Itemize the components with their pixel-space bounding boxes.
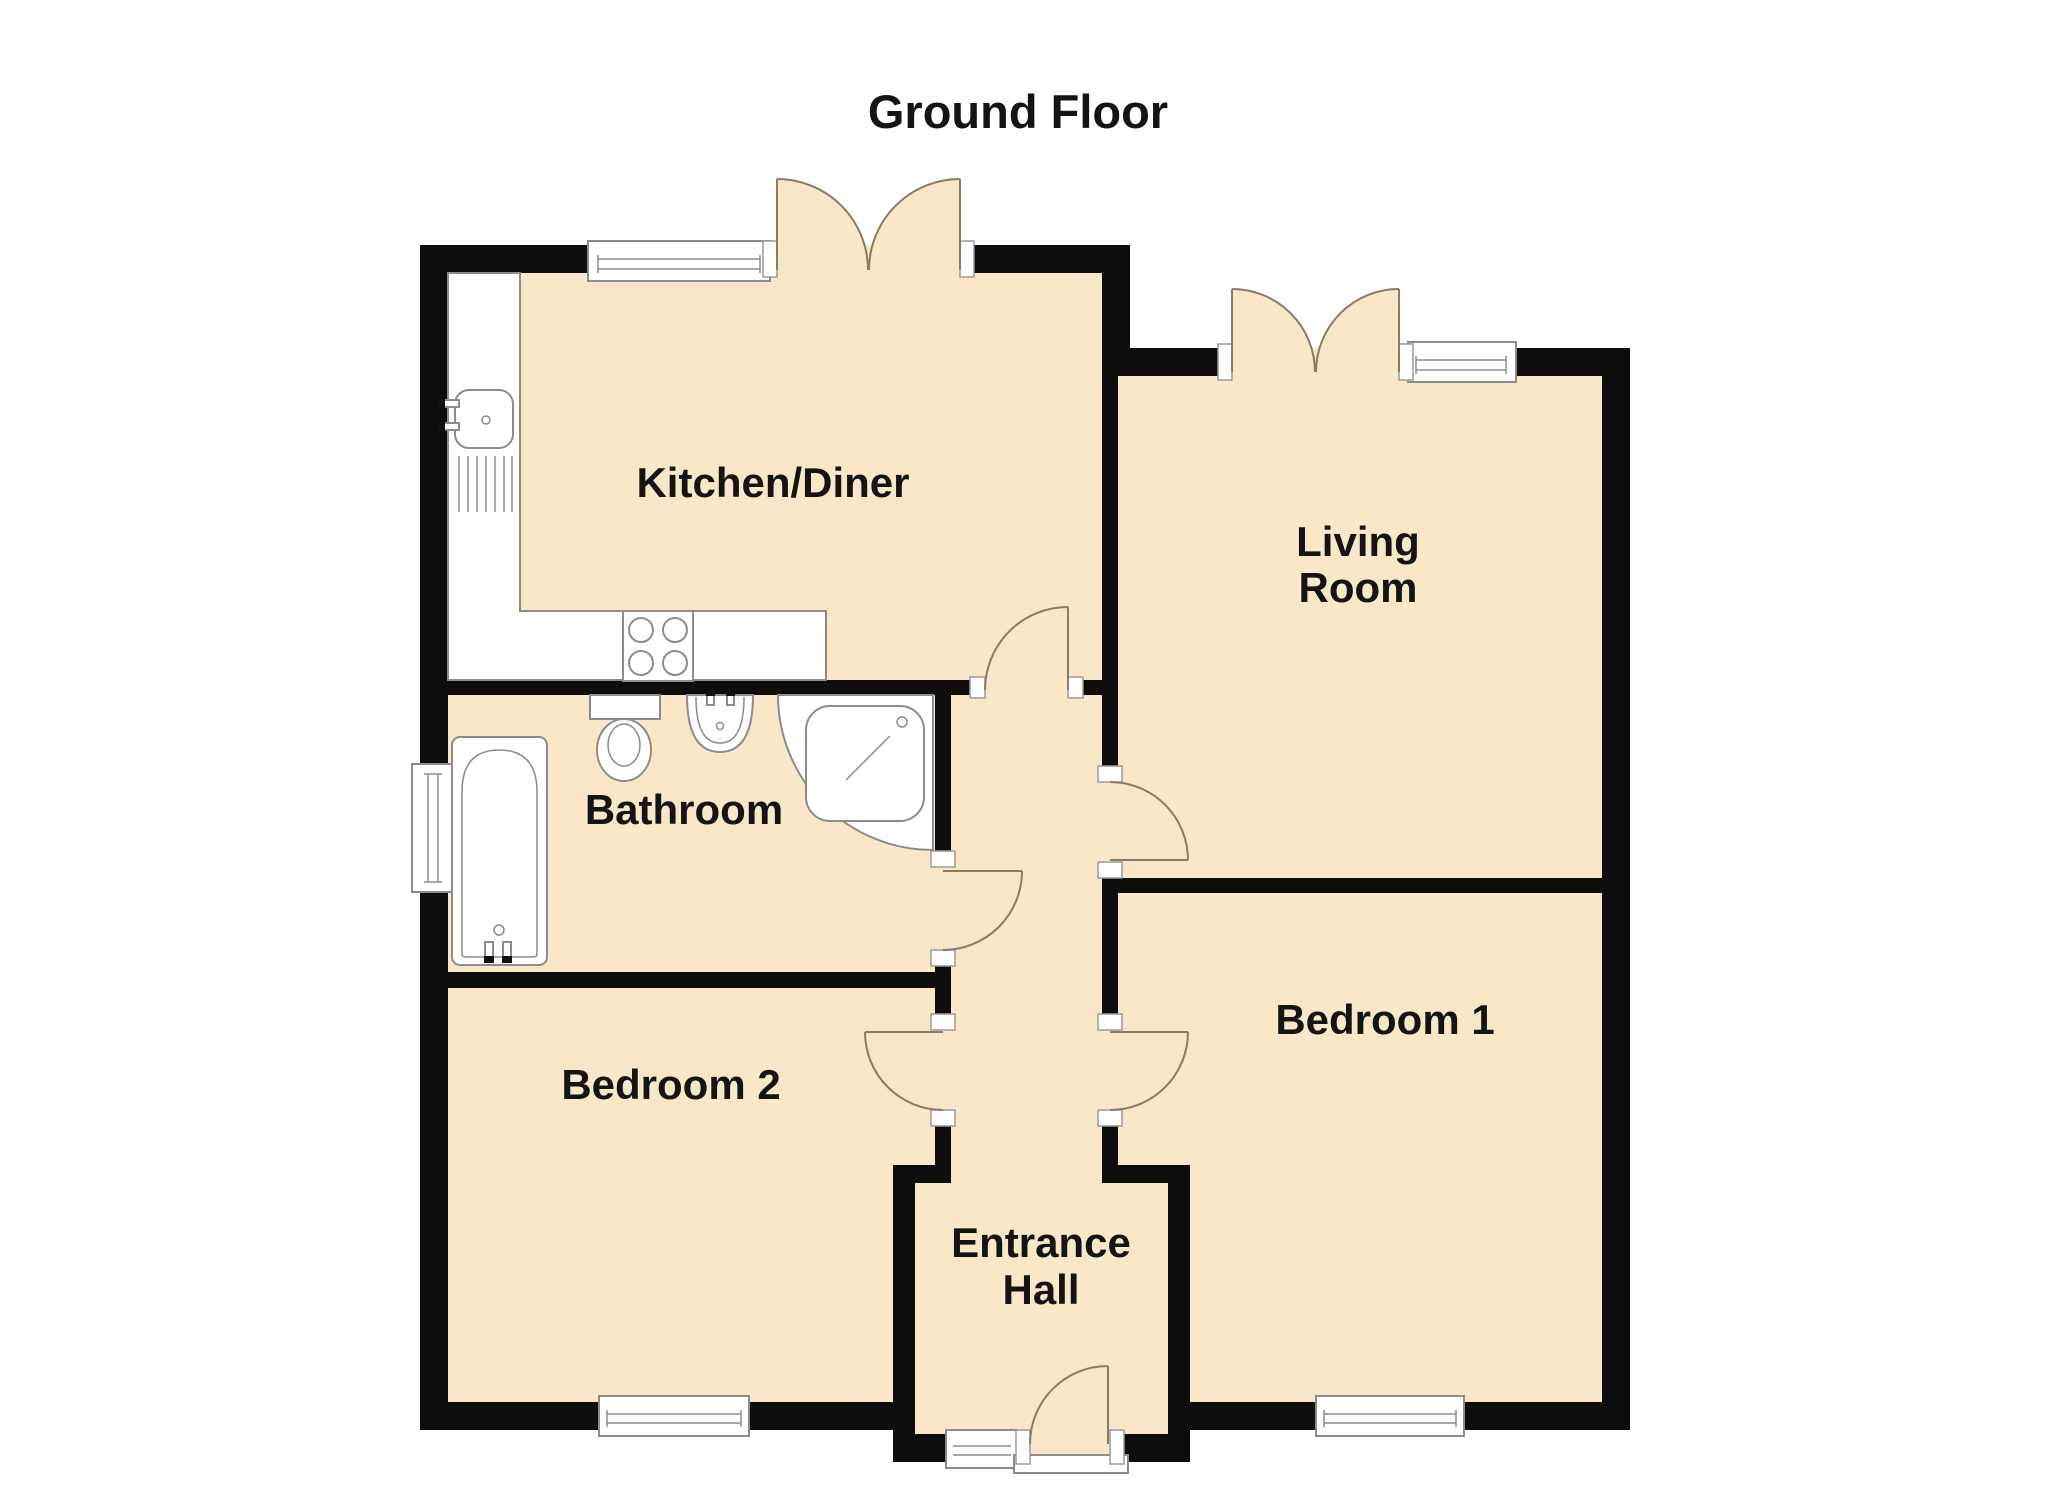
door-frame-notch bbox=[960, 241, 974, 277]
room-label-living-line1: Living bbox=[1296, 518, 1420, 565]
bathtub-tap-tip bbox=[502, 956, 512, 963]
bathtub-tap-tip bbox=[484, 956, 494, 963]
wall-hall-west-mid bbox=[935, 988, 951, 1014]
wall-entrance-east bbox=[1168, 1165, 1190, 1462]
wall-hall-west-upper bbox=[935, 695, 951, 852]
sink-tap-tip bbox=[438, 422, 445, 431]
window-box bbox=[599, 1396, 749, 1436]
basin-tap-tip bbox=[706, 690, 715, 696]
window-bedroom2-bottom bbox=[599, 1396, 749, 1436]
door-frame-notch bbox=[763, 241, 777, 277]
opening-kitchen-hall bbox=[970, 680, 1083, 695]
page-title: Ground Floor bbox=[868, 85, 1168, 138]
wall-living-top-left bbox=[1102, 348, 1218, 376]
window-kitchen-top bbox=[588, 241, 770, 281]
window-living-top bbox=[1408, 342, 1516, 382]
door-frame-notch bbox=[1098, 862, 1122, 878]
wall-hall-east-mid bbox=[1102, 878, 1118, 1014]
hob-burner bbox=[629, 618, 653, 642]
toilet-cistern bbox=[590, 695, 660, 719]
door-frame-notch bbox=[1098, 766, 1122, 782]
wall-living-bedroom1 bbox=[1102, 878, 1602, 893]
door-frame-notch bbox=[1098, 1110, 1122, 1126]
wall-entrance-bottom-right bbox=[1124, 1434, 1168, 1462]
toilet-bowl bbox=[597, 719, 651, 781]
room-label-kitchen: Kitchen/Diner bbox=[636, 459, 909, 506]
floor-plan-svg: Ground Floor Kitchen/Diner Living Room B… bbox=[0, 0, 2048, 1489]
door-frame-notch bbox=[1016, 1430, 1030, 1464]
window-entrance-bottom bbox=[946, 1430, 1018, 1468]
door-frame-notch bbox=[1098, 1014, 1122, 1030]
room-label-entrance-line1: Entrance bbox=[951, 1219, 1131, 1266]
window-box bbox=[1408, 342, 1516, 382]
window-bathroom-west bbox=[412, 764, 454, 892]
hob-burner bbox=[663, 618, 687, 642]
room-label-bedroom1: Bedroom 1 bbox=[1275, 996, 1494, 1043]
bathtub bbox=[452, 737, 547, 965]
hob-burner bbox=[629, 651, 653, 675]
door-frame-notch bbox=[931, 1014, 955, 1030]
door-frame-notch bbox=[1110, 1430, 1124, 1464]
wall-bathroom-bedroom2 bbox=[448, 972, 951, 988]
floor-plan-page: Ground Floor Kitchen/Diner Living Room B… bbox=[0, 0, 2048, 1489]
window-bedroom1-bottom bbox=[1316, 1396, 1464, 1436]
room-label-entrance-line2: Hall bbox=[1002, 1266, 1079, 1313]
door-frame-notch bbox=[931, 950, 955, 966]
room-label-bedroom2: Bedroom 2 bbox=[561, 1061, 780, 1108]
door-frame-notch bbox=[1399, 344, 1413, 380]
wall-entrance-bottom-left bbox=[893, 1434, 950, 1462]
window-box bbox=[588, 241, 770, 281]
hob-burner bbox=[663, 651, 687, 675]
door-frame-notch bbox=[1068, 677, 1083, 698]
wall-hall-east-upper bbox=[1102, 376, 1118, 766]
room-label-bathroom: Bathroom bbox=[585, 786, 783, 833]
wall-hall-west-lower bbox=[935, 1126, 951, 1183]
door-frame-notch bbox=[931, 851, 955, 867]
wall-entrance-west bbox=[893, 1165, 915, 1462]
sink-tap-tip bbox=[438, 399, 445, 408]
window-box bbox=[946, 1430, 1018, 1468]
wall-east bbox=[1602, 348, 1630, 1430]
basin-tap-tip bbox=[726, 690, 735, 696]
window-box bbox=[1316, 1396, 1464, 1436]
room-label-living-line2: Room bbox=[1299, 564, 1418, 611]
kitchen-sink bbox=[455, 390, 513, 448]
window-box bbox=[412, 764, 454, 892]
wall-kitchen-hall-stub bbox=[1083, 680, 1102, 695]
door-frame-notch bbox=[931, 1110, 955, 1126]
door-frame-notch bbox=[1218, 344, 1232, 380]
door-frame-notch bbox=[970, 677, 985, 698]
wall-hall-east-lower bbox=[1102, 1126, 1118, 1183]
